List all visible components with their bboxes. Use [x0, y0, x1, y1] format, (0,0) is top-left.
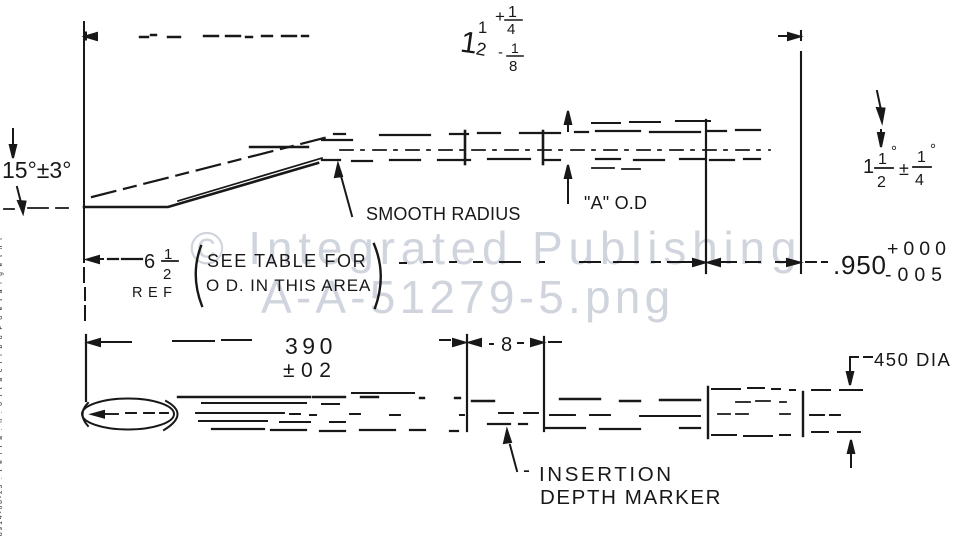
svg-text:+000: +000: [887, 238, 951, 260]
svg-text:-005: -005: [885, 264, 948, 286]
svg-text:4: 4: [507, 21, 515, 38]
svg-text:-: -: [523, 459, 530, 482]
svg-text:°: °: [930, 141, 936, 158]
svg-text:450 DIA: 450 DIA: [874, 349, 951, 370]
svg-text:8: 8: [509, 58, 517, 75]
svg-text:+: +: [495, 7, 505, 26]
svg-text:1: 1: [478, 19, 487, 37]
svg-text:1: 1: [917, 149, 926, 166]
svg-text:2: 2: [877, 174, 886, 191]
svg-text:8: 8: [501, 334, 512, 356]
svg-text:INSERTION: INSERTION: [539, 463, 674, 486]
svg-text:.950: .950: [833, 250, 887, 280]
svg-text:SMOOTH RADIUS: SMOOTH RADIUS: [366, 204, 521, 224]
svg-text:SEE TABLE FOR: SEE TABLE FOR: [207, 251, 367, 271]
svg-text:1: 1: [511, 40, 519, 56]
svg-text:1: 1: [508, 4, 517, 21]
svg-text:1: 1: [878, 151, 887, 168]
svg-text:1: 1: [863, 156, 874, 178]
svg-text:6: 6: [144, 251, 155, 273]
svg-text:±: ±: [899, 159, 909, 179]
svg-text:2: 2: [163, 266, 171, 283]
svg-text:°: °: [891, 143, 897, 160]
svg-text:8914-08-23 . t e l i a: 8914-08-23 . t e l i a : n . o i t a c i…: [0, 228, 4, 536]
svg-text:4: 4: [915, 172, 924, 189]
svg-text:"A" O.D: "A" O.D: [584, 193, 647, 213]
svg-text:±02: ±02: [283, 359, 337, 382]
svg-text:15°±3°: 15°±3°: [2, 157, 71, 183]
svg-text:390: 390: [285, 333, 337, 359]
svg-text:O D. IN THIS AREA: O D. IN THIS AREA: [206, 276, 371, 295]
svg-text:2: 2: [474, 38, 487, 59]
svg-text:DEPTH MARKER: DEPTH MARKER: [540, 486, 722, 509]
svg-text:REF: REF: [132, 285, 178, 301]
svg-text:-: -: [498, 44, 503, 61]
